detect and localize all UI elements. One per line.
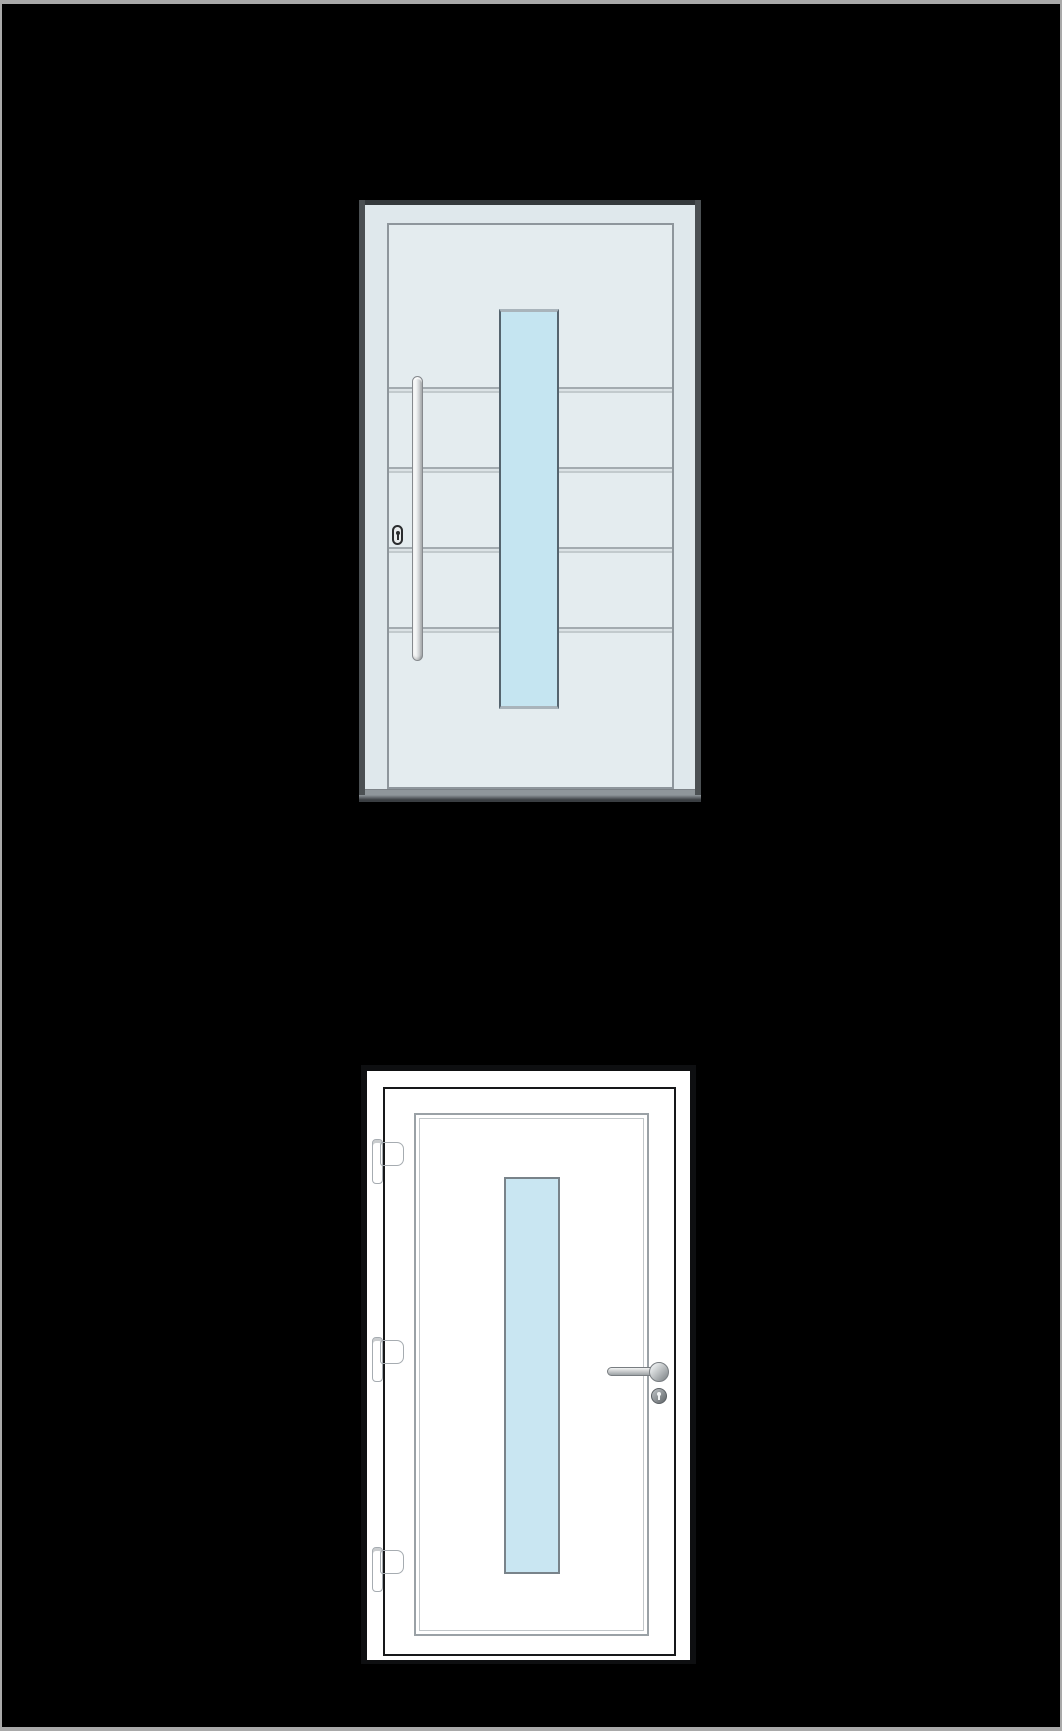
aluminum-door-illustration[interactable] (359, 200, 701, 802)
keyhole-slot (658, 1395, 660, 1400)
door-b-bottom-edge (361, 1660, 696, 1664)
door-a-glass-panel (499, 309, 559, 709)
keyhole-slot (397, 534, 399, 540)
door-b-glass-panel (504, 1177, 560, 1574)
door-a-leaf (387, 223, 674, 789)
door-b-lock-rosette (651, 1388, 667, 1404)
door-b-hinge-bottom (370, 1547, 404, 1592)
door-b-hinge-middle (370, 1337, 404, 1382)
door-b-top-edge (361, 1065, 696, 1071)
door-a-top-edge (359, 200, 701, 205)
hinge-body (380, 1340, 404, 1364)
door-a-right-edge (695, 200, 701, 802)
door-a-left-edge (359, 200, 365, 802)
door-b-right-edge (690, 1065, 696, 1664)
hinge-body (380, 1142, 404, 1166)
door-a-lock-cylinder (392, 525, 403, 545)
door-a-bar-handle (412, 376, 423, 661)
hinge-body (380, 1550, 404, 1574)
door-b-handle-rosette (649, 1362, 669, 1382)
door-b-left-edge (361, 1065, 367, 1664)
door-a-bottom-edge (359, 795, 701, 802)
canvas (0, 0, 1062, 1731)
door-b-hinge-top (370, 1139, 404, 1184)
pvc-door-illustration[interactable] (361, 1065, 696, 1664)
